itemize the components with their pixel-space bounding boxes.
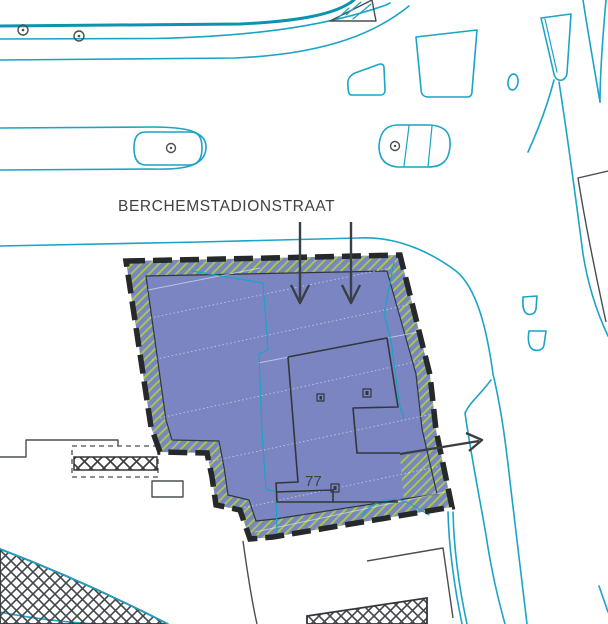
manhole-icon — [167, 144, 176, 153]
hatch-zone-bottom-left — [0, 549, 168, 624]
hatch-zone-bottom-strip — [307, 598, 427, 624]
d-shape-lower — [528, 331, 546, 350]
top-right-island — [541, 14, 571, 80]
curb-fork-right — [465, 380, 505, 624]
curb-bottom-right-corner — [599, 586, 608, 612]
fence-strip — [74, 457, 157, 470]
triangle-hatch-lines — [338, 2, 371, 19]
street-edge-right-short — [528, 80, 554, 152]
left-ground-features — [0, 440, 183, 497]
manhole-icon — [391, 142, 400, 151]
traffic-island-left-inner-pill — [134, 132, 202, 165]
pill-divider-2 — [428, 126, 432, 167]
top-right-taper-a — [583, 0, 600, 102]
d-shape-upper — [523, 296, 537, 314]
island-quad — [416, 30, 477, 97]
small-oval-marker — [507, 73, 519, 90]
site-plan-map: BERCHEMSTADIONSTRAAT 77 — [0, 0, 608, 624]
crosshatch-zones — [0, 549, 427, 624]
stepped-wall-line — [0, 440, 118, 457]
manhole-markers — [18, 25, 400, 153]
house-number-label: 77 — [305, 473, 322, 490]
curb-right-double-b — [453, 512, 467, 624]
street-edge-top-1 — [0, 0, 354, 26]
pill-divider-1 — [404, 126, 409, 166]
street-name-label: BERCHEMSTADIONSTRAAT — [118, 198, 335, 215]
traffic-island-right-pill — [379, 125, 450, 167]
small-island-mid — [348, 64, 385, 95]
line-below-parcel — [243, 541, 257, 624]
top-right-taper-b — [600, 0, 606, 102]
curb-right-double-a — [448, 512, 462, 624]
small-outbuilding — [152, 481, 183, 497]
